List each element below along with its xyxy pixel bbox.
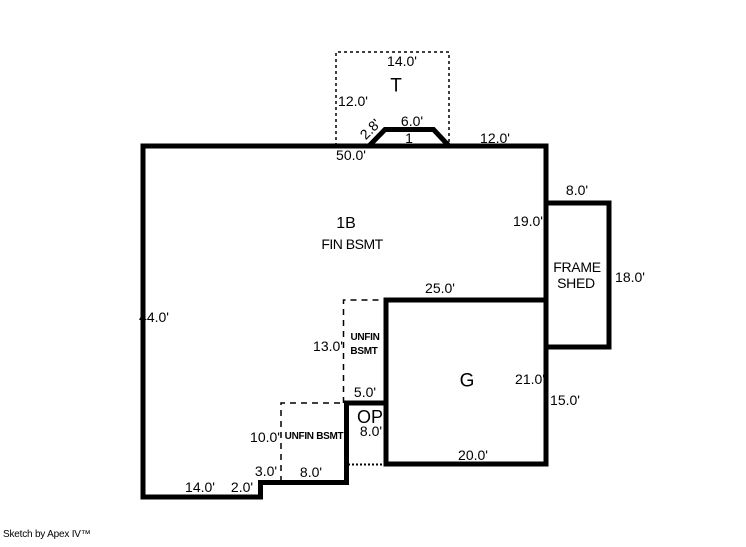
label-unfin-upper-line1: UNFIN xyxy=(350,333,379,343)
dim-shed-right: 18.0' xyxy=(615,270,645,284)
dim-top-total: 50.0' xyxy=(336,148,366,162)
dim-t-left: 12.0' xyxy=(338,94,368,108)
floorplan-sketch: 14.0' T 12.0' 6.0' 2.8' 1 12.0' 50.0' 1B… xyxy=(0,0,746,547)
room-label-main-sub: FIN BSMT xyxy=(321,237,382,251)
dim-unfin-upper-width: 5.0' xyxy=(354,385,376,399)
label-unfin-lower: UNFIN BSMT xyxy=(285,432,344,442)
dim-porch-height: 8.0' xyxy=(360,424,382,438)
dim-step-top: 3.0' xyxy=(255,464,277,478)
dim-unfin-lower-height: 10.0' xyxy=(250,430,280,444)
sketch-credit: Sketch by Apex IV™ xyxy=(3,529,91,541)
dim-shed-top: 8.0' xyxy=(566,183,588,197)
dim-t-top: 14.0' xyxy=(387,54,417,68)
dim-left-total: 44.0' xyxy=(139,310,169,324)
room-label-garage: G xyxy=(460,372,475,391)
dim-garage-top: 25.0' xyxy=(425,281,455,295)
main-dwelling-outline xyxy=(143,146,546,497)
room-label-shed-line2: SHED xyxy=(557,276,595,290)
room-label-t: T xyxy=(390,77,402,96)
label-unfin-upper-line2: BSMT xyxy=(350,347,377,357)
dim-bay-top: 6.0' xyxy=(401,114,423,128)
dim-garage-bottom: 20.0' xyxy=(458,448,488,462)
dim-right-upper: 19.0' xyxy=(513,214,543,228)
dim-bottom-left: 14.0' xyxy=(185,480,215,494)
room-label-main: 1B xyxy=(336,216,356,232)
label-bay-count: 1 xyxy=(405,131,413,145)
dim-garage-right: 21.0' xyxy=(515,372,545,386)
room-label-shed-line1: FRAME xyxy=(553,260,601,274)
dim-unfin-lower-width: 8.0' xyxy=(300,465,322,479)
dim-right-lower: 15.0' xyxy=(550,393,580,407)
dim-unfin-upper-height: 13.0' xyxy=(313,339,343,353)
dim-step-side: 2.0' xyxy=(231,480,253,494)
dim-top-right: 12.0' xyxy=(480,131,510,145)
